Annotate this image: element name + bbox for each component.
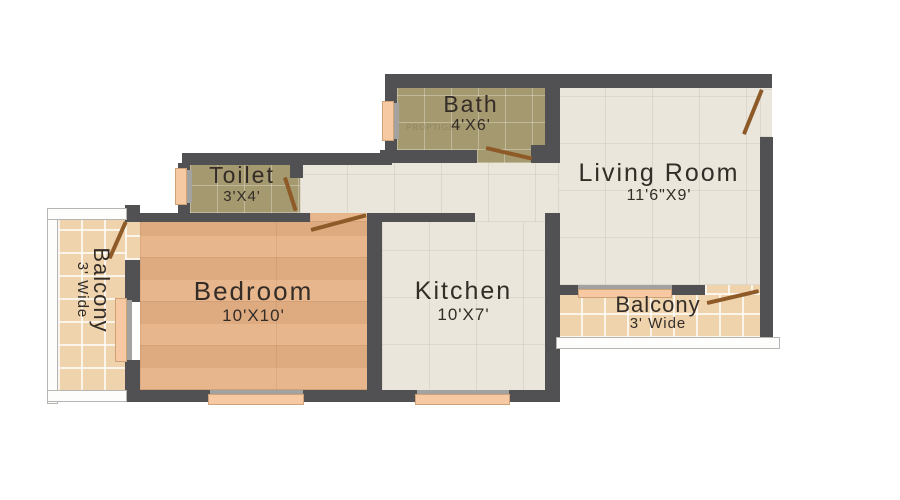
wall-bedroom-left-bottom — [125, 360, 140, 392]
balcony-left-rail-top — [47, 208, 127, 220]
kitchen-label: Kitchen 10'X7' — [382, 278, 545, 324]
wall-bedroom-left-corner — [125, 205, 140, 222]
balcony-left-rail-bottom — [47, 390, 127, 402]
kitchen-dims: 10'X7' — [382, 306, 545, 324]
bedroom-name: Bedroom — [140, 278, 367, 305]
living-room-name: Living Room — [558, 160, 760, 186]
entrance-gap-floor — [760, 88, 772, 137]
balcony-left-dims: 3' Wide — [74, 225, 90, 355]
toilet-label: Toilet 3'X4' — [182, 163, 302, 205]
bath-name: Bath — [397, 92, 545, 116]
bath-window — [382, 101, 394, 141]
wall-bath-bottom — [380, 150, 477, 163]
living-room-dims: 11'6"X9' — [558, 188, 760, 205]
toilet-dims: 3'X4' — [182, 189, 302, 205]
balcony-right-dims: 3' Wide — [558, 316, 758, 332]
bedroom-label: Bedroom 10'X10' — [140, 278, 367, 325]
kitchen-bottom-window — [415, 394, 510, 405]
balcony-left-label: Balcony 3' Wide — [63, 225, 113, 355]
balcony-left-rail-side — [47, 208, 58, 404]
wall-bedroom-kitchen-divider — [367, 213, 382, 400]
wall-bath-living-divider — [545, 88, 560, 163]
balcony-right-rail-bottom — [556, 337, 780, 349]
bedroom-dims: 10'X10' — [140, 307, 367, 325]
watermark: PROPTIGER — [406, 123, 462, 132]
kitchen-name: Kitchen — [382, 278, 545, 304]
balcony-right-label: Balcony 3' Wide — [558, 293, 758, 332]
toilet-name: Toilet — [182, 163, 302, 187]
wall-bedroom-left-mid — [125, 260, 140, 302]
wall-bedroom-top — [125, 213, 310, 222]
living-room-label: Living Room 11'6"X9' — [558, 160, 760, 205]
wall-kitchen-top — [367, 213, 475, 222]
floor-plan: Bath 4'X6' PROPTIGER Toilet 3'X4' Living… — [0, 0, 900, 500]
balcony-right-name: Balcony — [558, 293, 758, 316]
balcony-left-name: Balcony — [90, 225, 113, 355]
bedroom-left-window — [115, 298, 127, 362]
wall-living-right — [760, 137, 773, 337]
wall-bath-door-hinge — [531, 145, 545, 163]
balcony-left-door-gap-floor — [125, 222, 140, 260]
wall-top — [385, 74, 772, 88]
bedroom-left-window-frame — [127, 300, 132, 360]
bedroom-bottom-window — [208, 394, 304, 405]
